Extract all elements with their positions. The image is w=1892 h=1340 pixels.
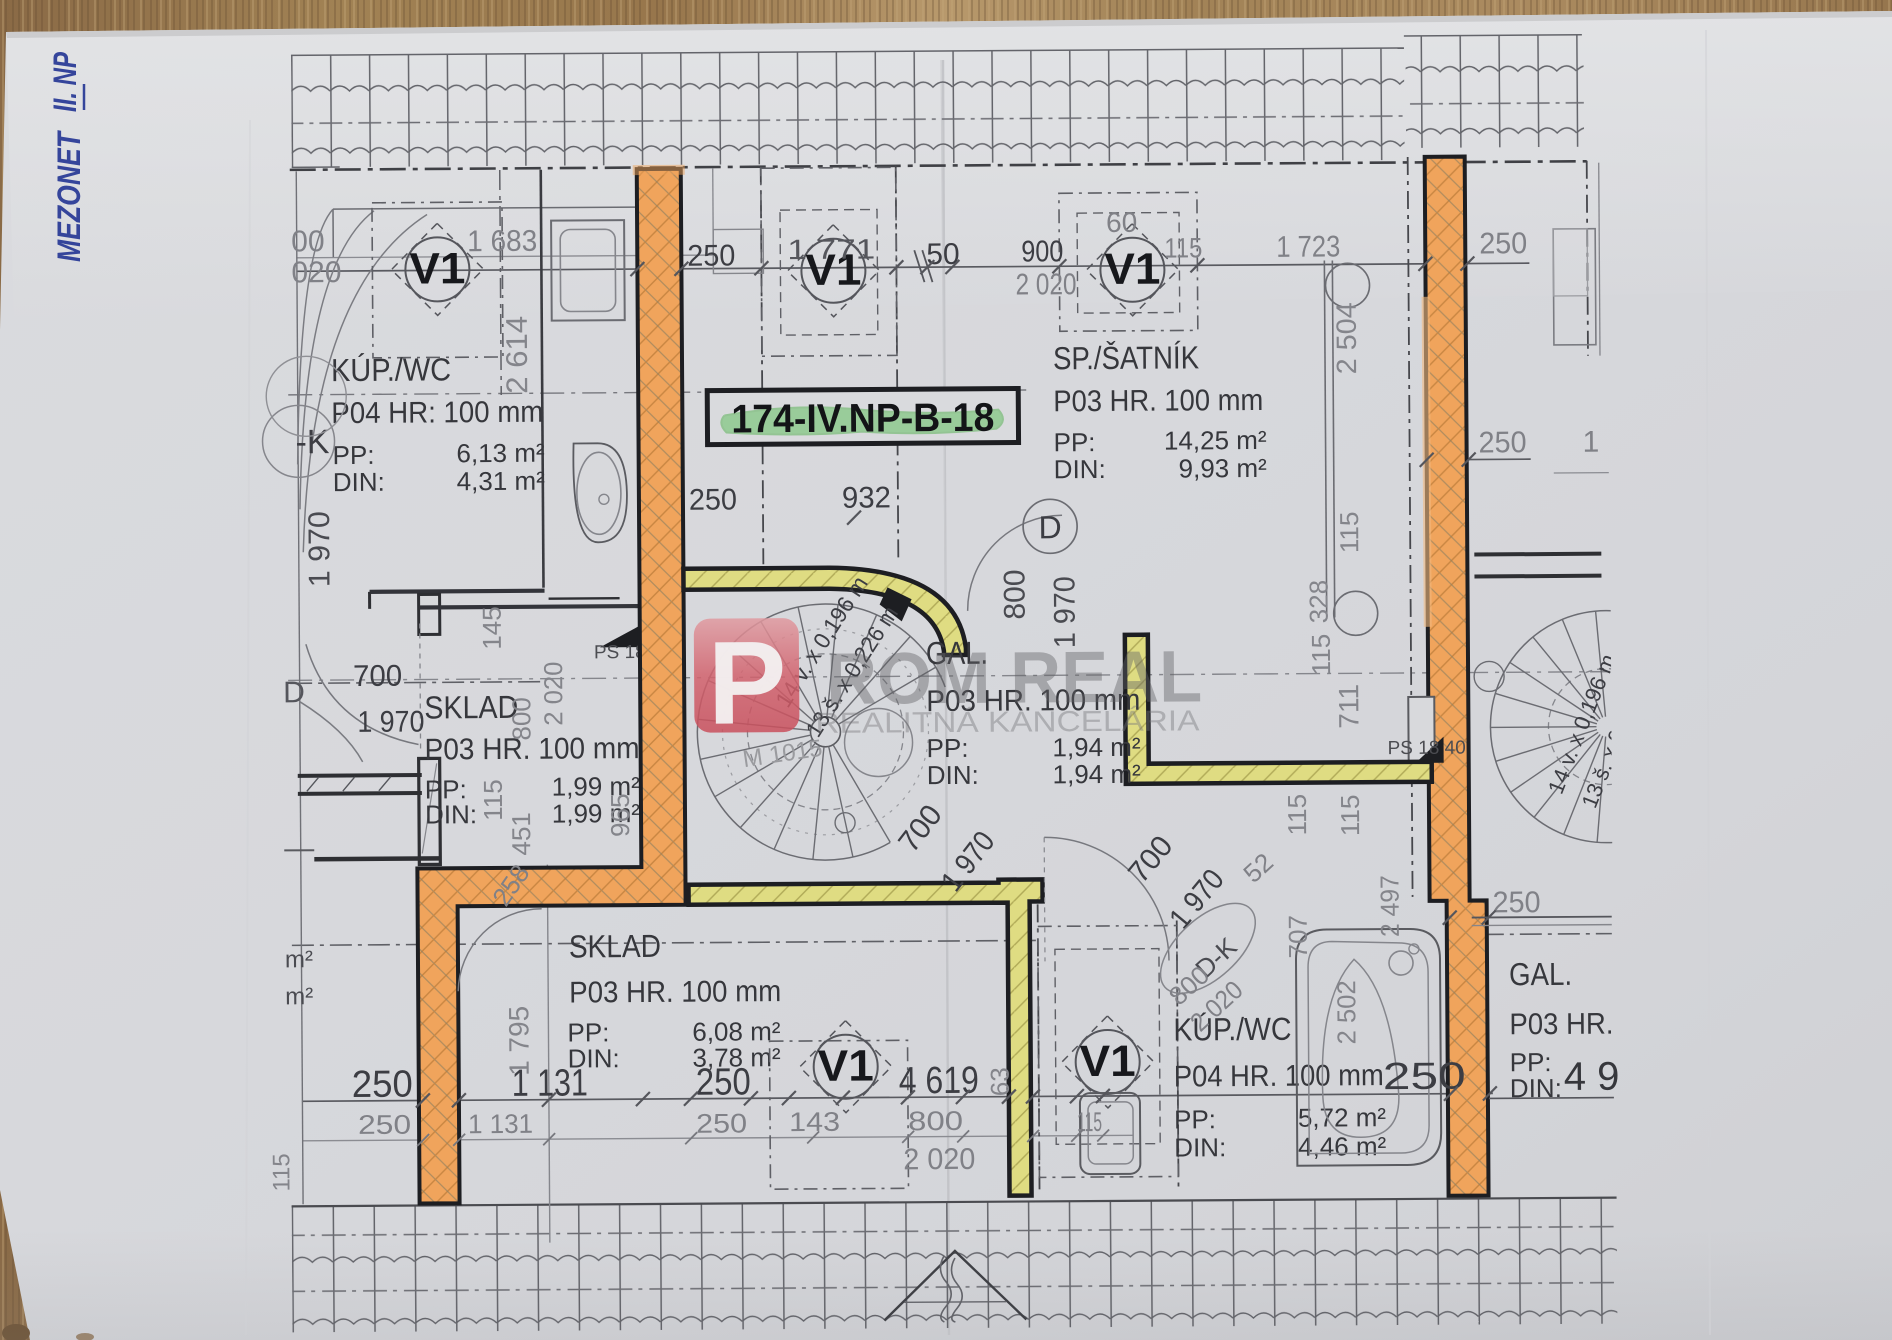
- svg-text:P03 HR. 100 mm: P03 HR. 100 mm: [1053, 384, 1263, 418]
- svg-text:250: 250: [689, 483, 737, 516]
- svg-text:m²: m²: [285, 946, 313, 973]
- svg-text:250: 250: [1478, 426, 1526, 459]
- svg-text:250: 250: [1479, 227, 1527, 260]
- svg-text:900: 900: [1021, 235, 1063, 268]
- svg-text:1 723: 1 723: [1276, 230, 1340, 263]
- svg-text:5,72 m²: 5,72 m²: [1298, 1102, 1387, 1133]
- svg-text:P04 HR. 100 mm: P04 HR. 100 mm: [1174, 1059, 1384, 1093]
- svg-text:2 614: 2 614: [501, 316, 535, 394]
- svg-text:9,93 m²: 9,93 m²: [1178, 453, 1267, 484]
- svg-text:P03 HR.: P03 HR.: [1509, 1008, 1613, 1042]
- svg-text:2 020: 2 020: [903, 1143, 975, 1176]
- svg-text:6,13 m²: 6,13 m²: [456, 438, 545, 469]
- svg-text:451: 451: [506, 812, 536, 856]
- svg-text:REALITNÁ KANCELÁRIA: REALITNÁ KANCELÁRIA: [815, 704, 1200, 740]
- svg-text:711: 711: [1333, 684, 1364, 729]
- svg-text:115: 115: [1335, 795, 1365, 837]
- svg-text:143: 143: [789, 1107, 840, 1137]
- svg-text:800: 800: [908, 1106, 963, 1136]
- svg-text:115: 115: [1334, 512, 1364, 554]
- svg-text:SKLAD: SKLAD: [569, 928, 661, 965]
- svg-text:50: 50: [926, 238, 960, 271]
- svg-text:60: 60: [1106, 207, 1137, 238]
- svg-text:250: 250: [696, 1061, 751, 1103]
- svg-text:DIN:: DIN:: [1174, 1132, 1226, 1162]
- svg-text:PP:: PP:: [333, 440, 375, 470]
- svg-text:2 020: 2 020: [1015, 268, 1076, 301]
- svg-text:965: 965: [605, 793, 635, 837]
- svg-text:SP./ŠATNÍK: SP./ŠATNÍK: [1053, 339, 1199, 376]
- svg-text:PP:: PP:: [1053, 427, 1095, 457]
- svg-text:KÚP./WC: KÚP./WC: [331, 351, 451, 388]
- svg-text:GAL.: GAL.: [1509, 956, 1572, 992]
- svg-text:020: 020: [291, 256, 341, 289]
- svg-text:m²: m²: [285, 983, 313, 1010]
- svg-text:DIN:: DIN:: [425, 799, 477, 829]
- svg-text:1 131: 1 131: [468, 1109, 533, 1139]
- svg-text:145: 145: [477, 606, 507, 650]
- svg-text:1 970: 1 970: [357, 705, 424, 738]
- svg-text:2 502: 2 502: [1331, 980, 1361, 1044]
- svg-text:1 795: 1 795: [503, 1006, 534, 1076]
- svg-text:PP:: PP:: [1174, 1104, 1216, 1134]
- svg-text:1 970: 1 970: [303, 511, 337, 587]
- svg-text:250: 250: [696, 1108, 747, 1138]
- svg-text:PS 18 40: PS 18 40: [1388, 738, 1466, 760]
- svg-text:P04 HR: 100 mm: P04 HR: 100 mm: [331, 396, 543, 430]
- svg-text:250: 250: [1493, 886, 1541, 919]
- svg-text:4 9: 4 9: [1564, 1055, 1620, 1099]
- svg-text:V1: V1: [409, 244, 465, 293]
- svg-text:250: 250: [352, 1064, 413, 1106]
- svg-text:V1: V1: [818, 1042, 874, 1091]
- svg-text:1,94 m²: 1,94 m²: [1053, 759, 1142, 790]
- svg-text:P03 HR. 100 mm: P03 HR. 100 mm: [569, 975, 781, 1009]
- svg-text:2 504: 2 504: [1331, 302, 1362, 374]
- svg-text:700: 700: [353, 660, 402, 693]
- svg-text:V1: V1: [1080, 1037, 1136, 1086]
- svg-text:115: 115: [478, 779, 508, 821]
- svg-text:MEZONET: MEZONET: [51, 130, 87, 262]
- svg-text:800: 800: [506, 697, 536, 741]
- svg-text:1: 1: [1582, 426, 1599, 459]
- svg-text:63: 63: [985, 1067, 1015, 1096]
- svg-text:328: 328: [1303, 580, 1333, 624]
- svg-text:115: 115: [1282, 794, 1312, 836]
- svg-text:1 683: 1 683: [467, 225, 537, 258]
- svg-text:DIN:: DIN:: [1054, 454, 1106, 484]
- svg-text:D: D: [1038, 509, 1061, 545]
- svg-text:707: 707: [1283, 915, 1313, 959]
- svg-text:4,31 m²: 4,31 m²: [457, 466, 546, 497]
- svg-text:250: 250: [687, 239, 735, 272]
- svg-text:2 497: 2 497: [1374, 875, 1404, 937]
- svg-text:2 020: 2 020: [538, 662, 568, 726]
- svg-text:14,25 m²: 14,25 m²: [1164, 425, 1267, 456]
- svg-text:D: D: [283, 676, 305, 709]
- svg-text:115: 115: [268, 1153, 295, 1191]
- svg-text:800: 800: [998, 569, 1031, 619]
- svg-text:DIN:: DIN:: [333, 467, 385, 497]
- svg-text:SKLAD: SKLAD: [424, 689, 518, 726]
- svg-text:00: 00: [291, 225, 325, 258]
- svg-text:1 771: 1 771: [787, 233, 875, 265]
- svg-text:V1: V1: [1104, 245, 1160, 294]
- svg-text:115: 115: [1306, 634, 1336, 676]
- svg-text:II. NP: II. NP: [47, 52, 83, 112]
- svg-text:DIN:: DIN:: [927, 760, 979, 790]
- svg-text:174-IV.NP-B-18: 174-IV.NP-B-18: [731, 396, 994, 442]
- svg-text:932: 932: [842, 481, 891, 514]
- svg-text:-K: -K: [295, 423, 330, 461]
- svg-text:115: 115: [1164, 232, 1202, 263]
- svg-text:P: P: [707, 617, 787, 750]
- svg-text:250: 250: [358, 1110, 411, 1140]
